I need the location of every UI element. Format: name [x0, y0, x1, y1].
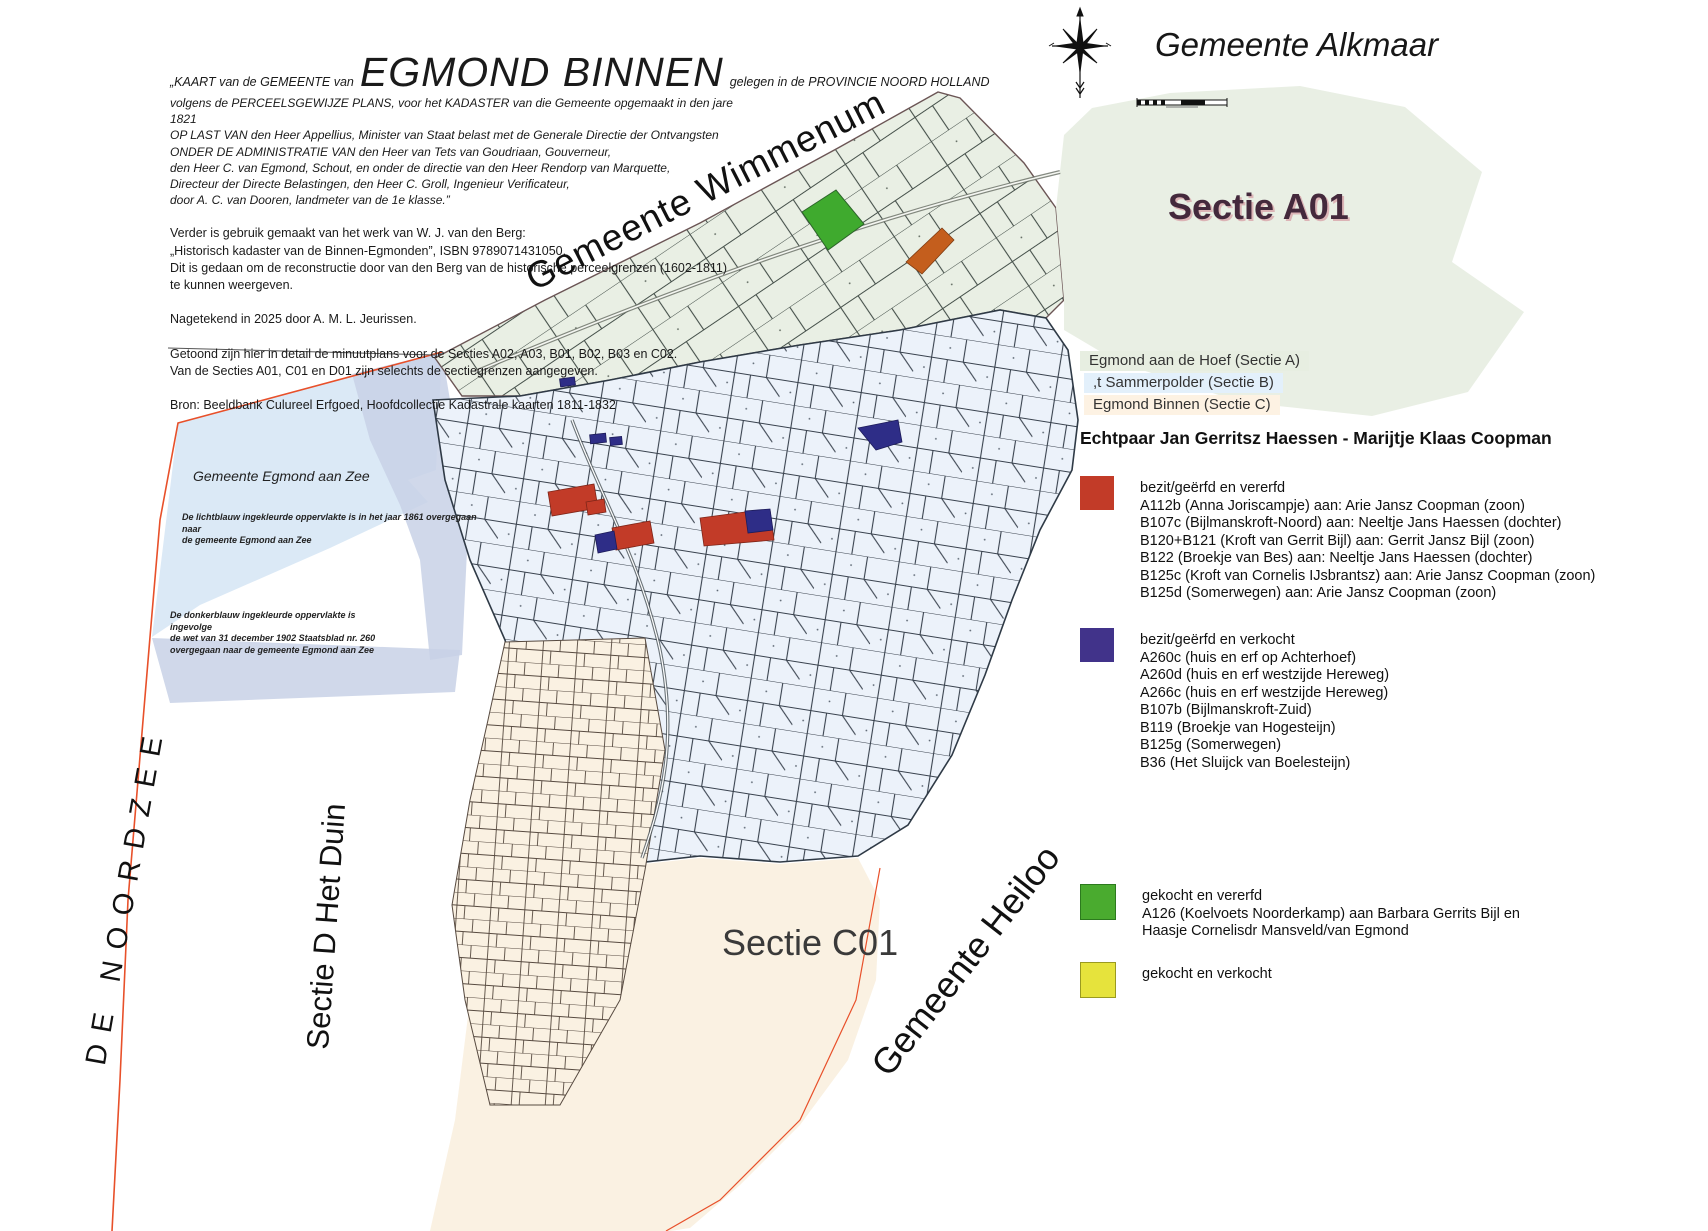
- annotation-donkerblauw: De donkerblauw ingekleurde oppervlakte i…: [170, 610, 380, 657]
- legend-item: B125g (Somerwegen): [1140, 737, 1389, 755]
- label-gemeente-egmond-aan-zee: Gemeente Egmond aan Zee: [193, 468, 370, 484]
- legend-item: B107c (Bijlmanskroft-Noord) aan: Neeltje…: [1140, 515, 1595, 533]
- chip-sectie-c: Egmond Binnen (Sectie C): [1084, 395, 1280, 415]
- legend-item: A266c (huis en erf westzijde Hereweg): [1140, 685, 1389, 703]
- legend-item: Haasje Cornelisdr Mansveld/van Egmond: [1142, 923, 1520, 941]
- legend-item: A260c (huis en erf op Achterhoef): [1140, 650, 1389, 668]
- map-title: „KAART van de GEMEENTE van EGMOND BINNEN…: [170, 52, 745, 93]
- green-swatch-icon: [1080, 884, 1116, 920]
- legend-group-green: gekocht en vererfd A126 (Koelvoets Noord…: [1080, 884, 1520, 941]
- legend-item: B107b (Bijlmanskroft-Zuid): [1140, 702, 1389, 720]
- legend-item: A126 (Koelvoets Noorderkamp) aan Barbara…: [1142, 906, 1520, 924]
- label-gemeente-alkmaar: Gemeente Alkmaar: [1155, 26, 1438, 64]
- legend-group-title: bezit/geërfd en vererfd: [1140, 480, 1595, 498]
- source-paragraph-2: Nagetekend in 2025 door A. M. L. Jeuriss…: [170, 311, 745, 328]
- source-paragraph-4: Bron: Beeldbank Culureel Erfgoed, Hoofdc…: [170, 397, 745, 414]
- title-suffix: gelegen in de PROVINCIE NOORD HOLLAND: [730, 75, 990, 89]
- legend-item-list: A126 (Koelvoets Noorderkamp) aan Barbara…: [1142, 906, 1520, 941]
- legend-group-blue: bezit/geërfd en verkocht A260c (huis en …: [1080, 628, 1389, 772]
- legend-group-title: bezit/geërfd en verkocht: [1140, 632, 1389, 650]
- legend-group-title: gekocht en vererfd: [1142, 888, 1520, 906]
- legend-item: A260d (huis en erf westzijde Hereweg): [1140, 667, 1389, 685]
- source-paragraph-3: Getoond zijn hier in detail de minuutpla…: [170, 346, 745, 381]
- legend-item: B122 (Broekje van Bes) aan: Neeltje Jans…: [1140, 550, 1595, 568]
- annotation-lichtblauw: De lichtblauw ingekleurde oppervlakte is…: [182, 512, 482, 547]
- chip-sectie-b: ,t Sammerpolder (Sectie B): [1084, 373, 1283, 393]
- label-sectie-a01: Sectie A01: [1168, 186, 1349, 228]
- legend-group-red: bezit/geërfd en vererfd A112b (Anna Jori…: [1080, 476, 1595, 603]
- title-main: EGMOND BINNEN: [360, 52, 724, 93]
- scale-bar: [1136, 97, 1232, 111]
- legend-item: B125c (Kroft van Cornelis IJsbrantsz) aa…: [1140, 568, 1595, 586]
- legend-item-list: A260c (huis en erf op Achterhoef)A260d (…: [1140, 650, 1389, 773]
- legend-item: A112b (Anna Joriscampje) aan: Arie Jansz…: [1140, 498, 1595, 516]
- legend-group-title: gekocht en verkocht: [1142, 966, 1272, 984]
- legend-item: B125d (Somerwegen) aan: Arie Jansz Coopm…: [1140, 585, 1595, 603]
- label-sectie-c01: Sectie C01: [722, 922, 898, 964]
- section-color-key: Egmond aan de Hoef (Sectie A) ,t Sammerp…: [1080, 351, 1309, 417]
- legend-item: B120+B121 (Kroft van Gerrit Bijl) aan: G…: [1140, 533, 1595, 551]
- legend-heading: Echtpaar Jan Gerritsz Haessen - Marijtje…: [1080, 428, 1552, 449]
- yellow-swatch-icon: [1080, 962, 1116, 998]
- legend-item: B119 (Broekje van Hogesteijn): [1140, 720, 1389, 738]
- legend-group-yellow: gekocht en verkocht: [1080, 962, 1272, 998]
- red-swatch-icon: [1080, 476, 1114, 510]
- compass-rose-icon: [1040, 6, 1120, 106]
- chip-sectie-a: Egmond aan de Hoef (Sectie A): [1080, 351, 1309, 371]
- title-prefix: „KAART van de GEMEENTE van: [170, 75, 354, 89]
- legend-item-list: A112b (Anna Joriscampje) aan: Arie Jansz…: [1140, 498, 1595, 603]
- legend-item: B36 (Het Sluijck van Boelesteijn): [1140, 755, 1389, 773]
- blue-swatch-icon: [1080, 628, 1114, 662]
